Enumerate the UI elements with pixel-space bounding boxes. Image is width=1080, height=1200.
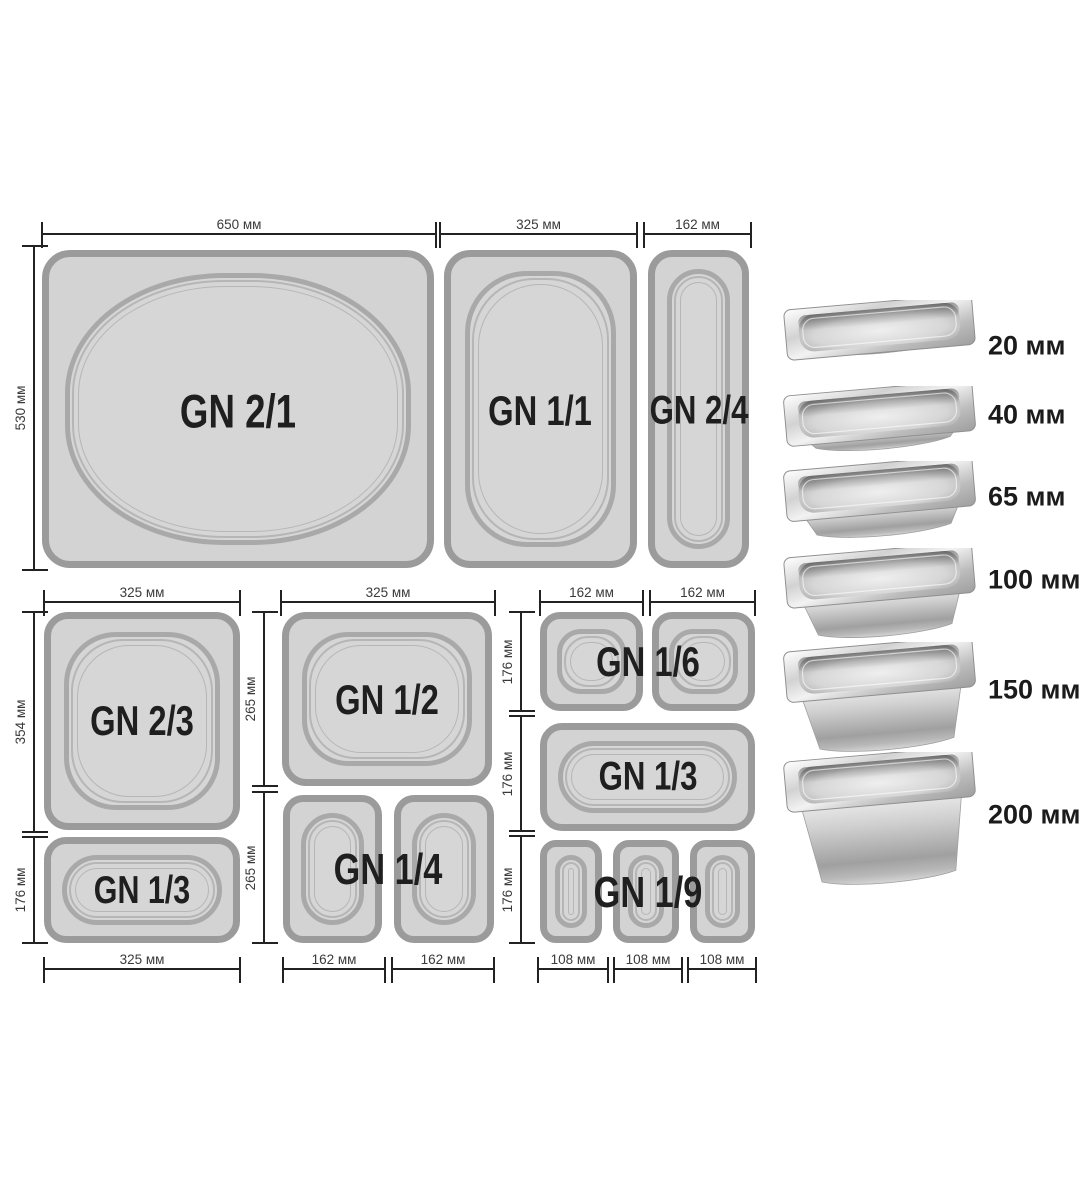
depth-label-65mm: 65 мм [988, 482, 1065, 513]
label-gn24: GN 2/4 [650, 389, 749, 434]
dim-width-162mm-gn16-a: 162 мм [540, 601, 643, 603]
steel-pan-image [782, 300, 977, 368]
label-gn11: GN 1/1 [488, 387, 592, 435]
dim-height-176mm-gn13r: 176 мм [520, 716, 522, 831]
dim-width-325mm-gn11: 325 мм [440, 233, 637, 235]
steel-pan-image [782, 386, 977, 464]
label-gn21: GN 2/1 [180, 384, 296, 439]
steel-pan-image [782, 642, 977, 765]
dim-text: 265 мм [243, 677, 258, 722]
dim-text: 162 мм [569, 585, 614, 600]
steel-pan-image [782, 461, 977, 551]
dim-width-325mm-left-bottom: 325 мм [44, 968, 240, 970]
dim-height-176mm-gn19: 176 мм [520, 836, 522, 943]
depth-label-20mm: 20 мм [988, 331, 1065, 362]
dim-width-108mm-a: 108 мм [538, 968, 608, 970]
dim-text: 176 мм [500, 867, 515, 912]
steel-pan-image [782, 548, 977, 651]
dim-text: 650 мм [217, 217, 262, 232]
dim-text: 176 мм [500, 751, 515, 796]
dim-width-325mm-left-top: 325 мм [44, 601, 240, 603]
dim-height-176mm-gn16: 176 мм [520, 612, 522, 711]
pan-gn19-c-well [705, 855, 740, 928]
pan-gn19-a-well [555, 855, 587, 928]
depth-label-40mm: 40 мм [988, 400, 1065, 431]
label-gn23: GN 2/3 [90, 697, 194, 745]
dim-height-265mm-gn14: 265 мм [263, 792, 265, 943]
steel-pan-photo-100mm [782, 548, 977, 656]
dim-width-650mm: 650 мм [42, 233, 436, 235]
dim-text: 354 мм [13, 700, 28, 745]
label-gn13-right: GN 1/3 [599, 755, 698, 800]
depth-label-200mm: 200 мм [988, 800, 1080, 831]
gastronorm-sizes-diagram: GN 2/1 GN 1/1 GN 2/4 GN 2/3 GN 1/3 GN 1/… [0, 0, 1080, 1200]
dim-text: 530 мм [13, 386, 28, 431]
dim-text: 325 мм [120, 952, 165, 967]
dim-text: 176 мм [500, 639, 515, 684]
label-gn16: GN 1/6 [596, 638, 700, 686]
label-gn12: GN 1/2 [335, 676, 439, 724]
dim-width-325mm-mid-top: 325 мм [281, 601, 495, 603]
dim-text: 108 мм [551, 952, 596, 967]
dim-width-162mm-gn16-b: 162 мм [650, 601, 755, 603]
dim-height-176mm-left: 176 мм [33, 837, 35, 943]
steel-pan-photo-65mm [782, 461, 977, 556]
dim-text: 108 мм [626, 952, 671, 967]
dim-text: 325 мм [516, 217, 561, 232]
dim-height-265mm-gn12: 265 мм [263, 612, 265, 786]
dim-height-530mm: 530 мм [33, 246, 35, 570]
depth-label-100mm: 100 мм [988, 565, 1080, 596]
dim-text: 162 мм [675, 217, 720, 232]
dim-text: 162 мм [680, 585, 725, 600]
dim-text: 265 мм [243, 845, 258, 890]
steel-pan-photo-40mm [782, 386, 977, 469]
steel-pan-photo-150mm [782, 642, 977, 770]
dim-width-108mm-b: 108 мм [614, 968, 682, 970]
steel-pan-image [782, 752, 977, 898]
dim-height-354mm: 354 мм [33, 612, 35, 832]
label-gn13-left: GN 1/3 [94, 869, 190, 913]
dim-text: 162 мм [421, 952, 466, 967]
dim-text: 162 мм [312, 952, 357, 967]
dim-width-162mm-gn14-a: 162 мм [283, 968, 385, 970]
steel-pan-photo-200mm [782, 752, 977, 903]
dim-width-162mm-gn14-b: 162 мм [392, 968, 494, 970]
dim-text: 176 мм [13, 868, 28, 913]
dim-text: 108 мм [700, 952, 745, 967]
dim-text: 325 мм [120, 585, 165, 600]
dim-width-108mm-c: 108 мм [688, 968, 756, 970]
dim-width-162mm-gn24: 162 мм [644, 233, 751, 235]
label-gn19: GN 1/9 [594, 868, 703, 918]
dim-text: 325 мм [366, 585, 411, 600]
label-gn14: GN 1/4 [334, 845, 443, 895]
depth-label-150mm: 150 мм [988, 675, 1080, 706]
steel-pan-photo-20mm [782, 300, 977, 373]
